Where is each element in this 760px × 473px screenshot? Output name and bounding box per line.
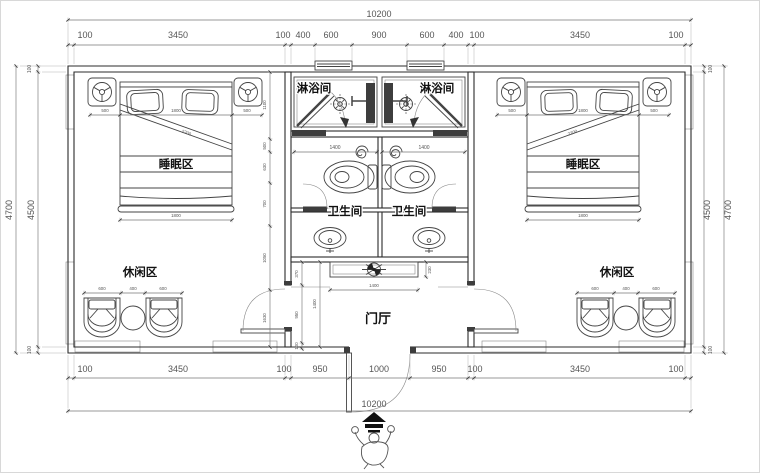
label-foyer: 门厅: [365, 311, 391, 326]
dim-seat: 600: [591, 286, 599, 291]
dim-top-5: 900: [371, 30, 386, 40]
dim-bot-7: 3450: [570, 364, 590, 374]
dim-left-inner: 4500: [26, 200, 36, 220]
dim-top-7: 400: [448, 30, 463, 40]
dim-left-outer: 4700: [4, 200, 14, 220]
dim-seat: 400: [129, 286, 137, 291]
dim-bot-0: 100: [77, 364, 92, 374]
dim-top-2: 100: [275, 30, 290, 40]
dim-top-3: 400: [295, 30, 310, 40]
dim-shower-right: 1400: [418, 145, 429, 151]
dim-total-top: 10200: [366, 9, 391, 19]
dim-total-bottom: 10200: [361, 399, 386, 409]
dim-room-1: 500: [262, 142, 267, 150]
door-leaf-right-room: [474, 329, 518, 333]
label-toilet-left: 卫生间: [328, 204, 363, 218]
dim-seat: 600: [159, 286, 167, 291]
dim-bot-6: 100: [467, 364, 482, 374]
dim-seat: 600: [98, 286, 106, 291]
dim-top-10: 100: [668, 30, 683, 40]
dim-seat: 400: [622, 286, 630, 291]
dim-bot-5: 950: [431, 364, 446, 374]
dim-top-0: 100: [77, 30, 92, 40]
dim-top-6: 600: [419, 30, 434, 40]
dim-wall-tr: 100: [708, 65, 714, 74]
center-wet-wall: [384, 83, 393, 123]
dim-right-outer: 4700: [723, 200, 733, 220]
floor-plan-viewport: 10200 100 3450 100 400 600 900 600 400 1…: [0, 0, 760, 473]
dim-right-inner: 4500: [702, 200, 712, 220]
floor-plan-drawing: 10200 100 3450 100 400 600 900 600 400 1…: [0, 0, 760, 473]
label-toilet-right: 卫生间: [392, 204, 427, 218]
dim-wall-br: 100: [708, 346, 714, 355]
dim-bed: 1800: [578, 213, 588, 218]
dim-bed: 500: [508, 108, 516, 113]
dim-bed: 1800: [578, 108, 588, 113]
dim-room-2: 630: [262, 163, 267, 171]
dim-foyer-2: 100: [294, 342, 299, 350]
label-leisure-left: 休闲区: [122, 265, 158, 279]
dim-bot-8: 100: [668, 364, 683, 374]
dim-bed: 1800: [171, 108, 181, 113]
dim-seat: 600: [652, 286, 660, 291]
dim-cabinet-width: 1400: [369, 283, 379, 288]
label-leisure-right: 休闲区: [599, 265, 635, 279]
door-leaf-left-room: [241, 329, 285, 333]
dim-top-8: 100: [469, 30, 484, 40]
foyer-zone: [330, 262, 418, 277]
dim-cabinet-depth: 230: [427, 266, 432, 274]
dim-wall-bl: 100: [27, 346, 33, 355]
dim-bot-4: 1000: [369, 364, 389, 374]
dim-bot-1: 3450: [168, 364, 188, 374]
dim-room-0: 1100: [262, 100, 267, 110]
label-shower-left: 淋浴间: [297, 81, 332, 95]
dim-room-3: 700: [262, 200, 267, 208]
dim-bot-3: 950: [312, 364, 327, 374]
dim-shower-left: 1400: [329, 145, 340, 151]
dim-bot-2: 100: [276, 364, 291, 374]
dim-wall-tl: 100: [27, 65, 33, 74]
wc-door-left: [303, 207, 327, 212]
center-wet-wall: [366, 83, 375, 123]
dim-room-4: 1050: [262, 253, 267, 263]
dim-foyer-0: 370: [294, 270, 299, 278]
window-right-shower: [407, 61, 444, 70]
dim-bed: 1800: [171, 213, 181, 218]
label-sleeping-right: 睡眠区: [566, 157, 601, 171]
dim-top-4: 600: [323, 30, 338, 40]
dim-foyer-depth: 1400: [312, 299, 317, 309]
wc-door-right: [432, 207, 456, 212]
label-shower-right: 淋浴间: [420, 81, 455, 95]
dim-foyer-1: 950: [294, 311, 299, 319]
label-sleeping-left: 睡眠区: [159, 157, 194, 171]
dim-room-5: 1630: [262, 313, 267, 323]
dim-bed: 500: [650, 108, 658, 113]
dim-top-1: 3450: [168, 30, 188, 40]
window-left-shower: [315, 61, 352, 70]
dim-bed: 500: [101, 108, 109, 113]
dim-bed: 500: [243, 108, 251, 113]
dim-top-9: 3450: [570, 30, 590, 40]
